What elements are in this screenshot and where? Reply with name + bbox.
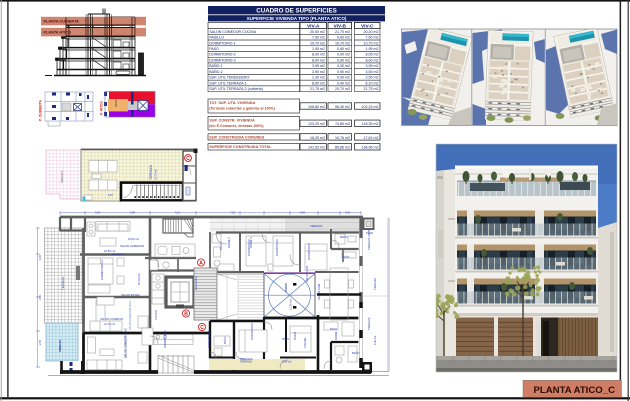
svg-text:20,20 m2: 20,20 m2 <box>364 30 379 34</box>
svg-text:7,50 m2: 7,50 m2 <box>312 36 325 40</box>
svg-text:21,75 m2: 21,75 m2 <box>364 87 379 91</box>
svg-text:PASILLO: PASILLO <box>209 36 224 40</box>
svg-text:TERRAZA: TERRAZA <box>149 164 153 180</box>
svg-text:9,40 m2: 9,40 m2 <box>373 335 377 345</box>
svg-text:0,90 m2: 0,90 m2 <box>337 76 350 80</box>
svg-text:TERRAZA: TERRAZA <box>61 277 65 290</box>
svg-text:21,75 m2: 21,75 m2 <box>154 169 158 180</box>
svg-text:TERRAZA: TERRAZA <box>240 360 252 364</box>
svg-text:1,30 m2: 1,30 m2 <box>312 76 325 80</box>
svg-text:123,25 m2: 123,25 m2 <box>308 122 325 126</box>
svg-text:4,30 m2: 4,30 m2 <box>337 64 350 68</box>
svg-text:DORM: DORM <box>334 331 338 340</box>
svg-text:SALON COMEDOR: SALON COMEDOR <box>100 317 123 321</box>
svg-text:8,00 m2: 8,00 m2 <box>312 53 325 57</box>
svg-text:1,95 m2: 1,95 m2 <box>366 47 379 51</box>
svg-text:74,80 m2: 74,80 m2 <box>335 122 350 126</box>
svg-text:8,00 m2: 8,00 m2 <box>366 58 379 62</box>
svg-text:ATICO: ATICO <box>114 99 118 107</box>
svg-text:PASO: PASO <box>282 337 289 341</box>
svg-text:SALON VIV-B: SALON VIV-B <box>305 266 309 282</box>
svg-text:BAÑO-1: BAÑO-1 <box>209 63 222 68</box>
svg-text:DORMITORIO: DORMITORIO <box>163 331 167 348</box>
svg-text:SALON ESTAR: SALON ESTAR <box>121 293 140 297</box>
svg-text:21,70 m2: 21,70 m2 <box>104 322 115 326</box>
svg-text:C: C <box>186 156 190 162</box>
svg-text:0,90 m2: 0,90 m2 <box>337 36 350 40</box>
svg-text:0,90 m2: 0,90 m2 <box>337 58 350 62</box>
svg-text:12,30 m2: 12,30 m2 <box>289 299 293 310</box>
svg-text:TERRAZA: TERRAZA <box>58 339 62 352</box>
svg-text:141,53 m2: 141,53 m2 <box>308 146 325 150</box>
svg-text:0,90 m2: 0,90 m2 <box>337 70 350 74</box>
svg-text:136,96 m2: 136,96 m2 <box>362 146 379 150</box>
svg-text:ESCALERA: ESCALERA <box>194 276 198 290</box>
svg-text:P. ATICO: P. ATICO <box>100 101 104 115</box>
svg-text:10,70 m2: 10,70 m2 <box>335 41 350 45</box>
svg-text:TERRAZA: TERRAZA <box>373 278 377 290</box>
svg-text:10,70 m2: 10,70 m2 <box>364 41 379 45</box>
svg-text:5,10: 5,10 <box>108 194 113 197</box>
svg-text:8,00 m2: 8,00 m2 <box>282 360 292 364</box>
svg-text:PLANTA CUBIERTA: PLANTA CUBIERTA <box>44 20 80 24</box>
svg-text:(sin E.Comunes, terrazas 100%): (sin E.Comunes, terrazas 100%) <box>209 124 264 128</box>
svg-text:SUP. UTIL TERRAZA-1: SUP. UTIL TERRAZA-1 <box>209 81 246 85</box>
svg-text:7,50 m2: 7,50 m2 <box>366 36 379 40</box>
svg-text:PASO: PASO <box>330 327 337 331</box>
svg-text:PLANTA ATICO: PLANTA ATICO <box>44 31 71 35</box>
svg-text:PLANTA ATICO_C: PLANTA ATICO_C <box>533 385 615 396</box>
svg-text:6,10 m2: 6,10 m2 <box>366 81 379 85</box>
svg-text:P. CUBIERTA: P. CUBIERTA <box>39 99 43 121</box>
svg-text:SALON COMEDOR COCINA: SALON COMEDOR COCINA <box>209 30 257 34</box>
svg-text:2,95: 2,95 <box>38 339 42 345</box>
svg-text:3,95 m2: 3,95 m2 <box>366 64 379 68</box>
svg-text:DORMITORIO: DORMITORIO <box>250 323 254 340</box>
svg-text:A: A <box>199 261 203 267</box>
svg-text:C: C <box>200 325 204 331</box>
svg-text:DORMITORIO: DORMITORIO <box>307 243 311 260</box>
svg-text:0,90 m2: 0,90 m2 <box>337 53 350 57</box>
svg-text:DORMITORIO: DORMITORIO <box>247 239 251 256</box>
svg-text:SUPERFICIE VIVIENDA TIPO (PLA: SUPERFICIE VIVIENDA TIPO (PLANTA ATICO) <box>247 16 347 21</box>
svg-text:DORMITORIO: DORMITORIO <box>275 239 279 256</box>
svg-text:PERGOLA: PERGOLA <box>60 170 64 183</box>
svg-text:TOT. SUP. UTIL VIVIENDA: TOT. SUP. UTIL VIVIENDA <box>209 101 255 105</box>
svg-text:8,00 m2: 8,00 m2 <box>312 81 325 85</box>
svg-text:DORMITORIO-2: DORMITORIO-2 <box>209 53 236 57</box>
svg-text:TERRAZA: TERRAZA <box>310 224 323 228</box>
svg-text:20,70 m2: 20,70 m2 <box>335 87 350 91</box>
svg-text:SALON COMEDOR VIV-C: SALON COMEDOR VIV-C <box>125 328 128 358</box>
svg-text:PATIO: PATIO <box>284 283 288 292</box>
svg-text:DORMITORIO-3: DORMITORIO-3 <box>209 58 236 62</box>
svg-text:21,70 m2: 21,70 m2 <box>335 30 350 34</box>
svg-text:10,76 m2: 10,76 m2 <box>335 136 350 140</box>
svg-text:DORMITORIO: DORMITORIO <box>207 331 211 348</box>
svg-text:10,70 m2: 10,70 m2 <box>310 41 325 45</box>
svg-text:SALON COMEDOR: SALON COMEDOR <box>120 244 144 248</box>
svg-text:20,50 m2: 20,50 m2 <box>128 237 139 241</box>
svg-text:2,55 m2: 2,55 m2 <box>366 76 379 80</box>
svg-text:118,35 m2: 118,35 m2 <box>362 122 379 126</box>
svg-text:PASO: PASO <box>209 47 219 51</box>
svg-text:dormitorio: dormitorio <box>112 252 124 256</box>
svg-text:85,86 m2: 85,86 m2 <box>335 146 350 150</box>
svg-text:DORM-2: DORM-2 <box>227 237 231 248</box>
svg-text:3,95 m2: 3,95 m2 <box>312 64 325 68</box>
svg-text:8,05 m2: 8,05 m2 <box>366 53 379 57</box>
svg-text:SUP. CONSTRUIDA COMUNES: SUP. CONSTRUIDA COMUNES <box>209 135 265 139</box>
svg-text:0,90 m2: 0,90 m2 <box>337 47 350 51</box>
svg-text:TEND: TEND <box>366 231 373 235</box>
svg-text:18,25 m2: 18,25 m2 <box>310 136 325 140</box>
svg-text:COCINA: COCINA <box>154 310 158 320</box>
svg-text:DORM: DORM <box>293 332 297 340</box>
svg-text:10,70 m2: 10,70 m2 <box>137 273 141 285</box>
svg-text:CUADRO DE SUPERFICIES: CUADRO DE SUPERFICIES <box>256 7 336 14</box>
svg-text:9,40 m2: 9,40 m2 <box>337 81 350 85</box>
svg-text:COCINA: COCINA <box>303 337 307 348</box>
svg-text:B: B <box>184 312 188 318</box>
svg-text:96,30 m2: 96,30 m2 <box>335 105 350 109</box>
svg-text:SUPERFICIE CONSTRUIDA TOTAL: SUPERFICIE CONSTRUIDA TOTAL <box>209 145 272 149</box>
svg-text:3,55 m2: 3,55 m2 <box>366 70 379 74</box>
svg-text:3,90 m2: 3,90 m2 <box>312 70 325 74</box>
svg-text:SUP. CONSTR. VIVIENDA: SUP. CONSTR. VIVIENDA <box>209 119 255 123</box>
svg-text:TERRAZA: TERRAZA <box>367 317 371 330</box>
svg-text:BAÑO-2: BAÑO-2 <box>209 69 222 74</box>
svg-text:SUP. UTIL TENDEDERO: SUP. UTIL TENDEDERO <box>209 76 249 80</box>
svg-text:102,15 m2: 102,15 m2 <box>362 105 379 109</box>
svg-text:1,95 m2: 1,95 m2 <box>312 47 325 51</box>
svg-text:17,61 m2: 17,61 m2 <box>364 136 379 140</box>
svg-text:106,80 m2: 106,80 m2 <box>308 105 325 109</box>
svg-text:4,35: 4,35 <box>38 254 42 260</box>
svg-text:21,75 m2: 21,75 m2 <box>310 87 325 91</box>
svg-text:SALON COMEDOR VIV-A: SALON COMEDOR VIV-A <box>129 300 132 330</box>
svg-text:SUP. UTIL TERRAZA-2 (cubierta): SUP. UTIL TERRAZA-2 (cubierta) <box>209 87 263 91</box>
svg-text:DORMITORIO-1: DORMITORIO-1 <box>209 41 236 45</box>
svg-text:20,50 m2: 20,50 m2 <box>310 30 325 34</box>
svg-text:SALON COM: SALON COM <box>317 283 321 300</box>
svg-text:DORMITORIO-1: DORMITORIO-1 <box>100 260 104 280</box>
svg-text:(Terrazas cubiertas y galerias: (Terrazas cubiertas y galerias al 100%) <box>209 107 275 111</box>
svg-text:8,00 m2: 8,00 m2 <box>312 58 325 62</box>
